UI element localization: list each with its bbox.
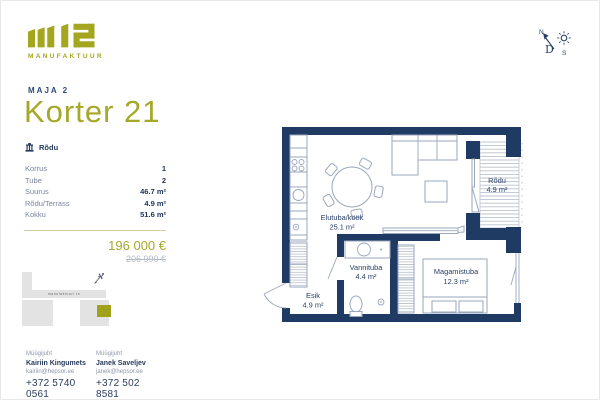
bathroom-door — [328, 257, 337, 279]
table-row: Suurus 46.7 m² — [25, 187, 166, 199]
room-label: Esik — [306, 291, 320, 300]
room-label: Vannituba — [350, 263, 384, 272]
coffee-table — [425, 181, 447, 202]
table-row: Tube 2 — [25, 176, 166, 188]
feature-badge: Rõdu — [25, 143, 58, 152]
site-building-highlight — [97, 305, 111, 317]
contact-email: kairiin@hepsor.ee — [26, 369, 94, 375]
room-area: 4.4 m² — [356, 272, 377, 281]
dining-set — [322, 157, 383, 218]
room-area: 12.3 m² — [443, 277, 469, 286]
brochure-page: MANUFAKTUUR N D S MAJA 2 Korter 21 — [0, 0, 600, 400]
contact-phone: +372 5740 0561 — [26, 378, 94, 400]
compass-n: N — [539, 29, 544, 36]
balcony-icon — [25, 143, 34, 152]
compass-icon: N D S — [533, 20, 577, 64]
contact-name: Kairiin Kingumets — [26, 360, 94, 367]
hall-wardrobe — [290, 242, 307, 287]
page-title: Korter 21 — [24, 94, 161, 130]
table-row: Rõdu/Terrass 4.9 m² — [25, 199, 166, 211]
table-row: Kokku 51.6 m² — [25, 210, 166, 222]
sideboard — [383, 228, 458, 234]
spec-table: Korrus 1 Tube 2 Suurus 46.7 m² Rõdu/Terr… — [25, 164, 166, 222]
compass-s: S — [562, 50, 567, 57]
bedroom-wardrobe — [398, 245, 414, 313]
site-street-band: manufaktuuri tn — [22, 290, 106, 298]
room-area: 4.9 m² — [487, 185, 508, 194]
contact-card: Müügijuht Janek Saveljev janek@hepsor.ee… — [96, 351, 164, 400]
entrance-door — [264, 283, 286, 308]
floor-plan: Elutuba/köök 25.1 m² Rõdu 4.9 m² Vannitu… — [260, 115, 540, 335]
balcony-door — [472, 159, 479, 212]
kitchen-counter — [290, 135, 307, 240]
room-label: Rõdu — [488, 176, 506, 185]
room-area: 4.9 m² — [303, 301, 324, 310]
room-area: 25.1 m² — [329, 223, 355, 232]
room-label: Elutuba/köök — [321, 213, 364, 222]
site-plan: manufaktuuri tn — [22, 271, 142, 331]
site-building-a — [22, 300, 53, 326]
table-row: Korrus 1 — [25, 164, 166, 176]
badge-label: Rõdu — [39, 143, 58, 152]
contact-email: janek@hepsor.ee — [96, 369, 164, 375]
toilet-icon — [350, 296, 362, 312]
bedroom-window — [511, 253, 519, 303]
logo-subtitle: MANUFAKTUUR — [28, 53, 104, 60]
price-current: 196 000 € — [24, 238, 166, 253]
divider — [24, 230, 166, 231]
site-compass-icon — [90, 271, 106, 287]
contact-phone: +372 502 8581 — [96, 378, 164, 400]
compass-d: D — [545, 43, 554, 56]
m12-logo — [28, 21, 98, 51]
contact-role: Müügijuht — [96, 351, 164, 357]
contact-card: Müügijuht Kairiin Kingumets kairiin@heps… — [26, 351, 94, 400]
contact-role: Müügijuht — [26, 351, 94, 357]
sofa — [392, 135, 457, 175]
room-label: Magamistuba — [434, 267, 479, 276]
price-original: 206 990 € — [24, 254, 166, 264]
contact-name: Janek Saveljev — [96, 360, 164, 367]
